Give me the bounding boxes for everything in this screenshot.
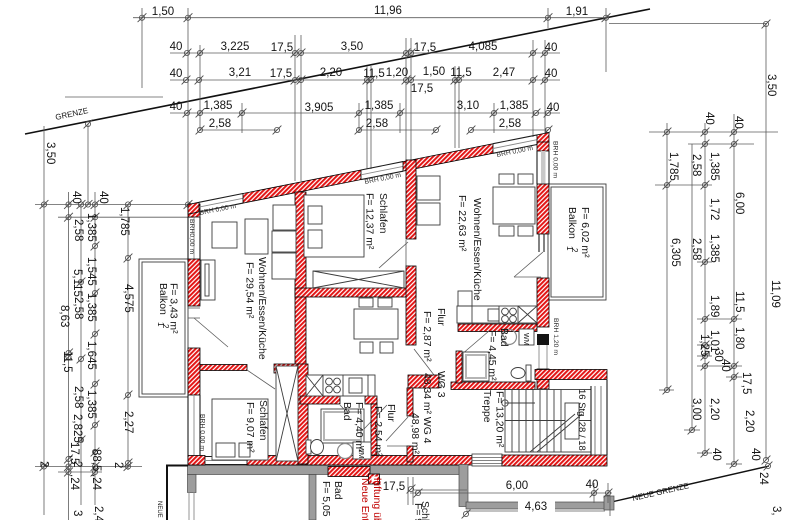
svg-text:NEUE: NEUE (156, 501, 162, 518)
svg-text:,24: ,24 (90, 474, 102, 491)
svg-text:3,905: 3,905 (305, 102, 334, 114)
svg-text:2,825: 2,825 (71, 414, 83, 443)
svg-text:BRH 0,00 m: BRH 0,00 m (552, 141, 559, 178)
svg-text:1,545: 1,545 (85, 257, 97, 286)
svg-text:17,5: 17,5 (740, 372, 752, 394)
svg-text:Wohnen/Essen/Küche: Wohnen/Essen/Küche (471, 198, 482, 301)
svg-text:48,98 m²: 48,98 m² (409, 413, 420, 455)
svg-text:2: 2 (570, 248, 579, 253)
svg-text:2,20: 2,20 (320, 67, 342, 79)
svg-text:Schlafen: Schlafen (377, 193, 388, 234)
svg-text:1,785: 1,785 (118, 207, 130, 236)
svg-text:3,: 3, (770, 506, 782, 516)
svg-text:6,00: 6,00 (506, 480, 528, 492)
svg-text:Bad: Bad (341, 402, 352, 421)
svg-text:1,89: 1,89 (708, 295, 720, 317)
svg-text:40: 40 (749, 448, 761, 461)
svg-text:11,5: 11,5 (450, 67, 472, 79)
svg-text:Treppe: Treppe (481, 390, 492, 423)
svg-text:24: 24 (757, 472, 769, 485)
svg-text:2,58: 2,58 (690, 154, 702, 176)
svg-text:40: 40 (547, 102, 560, 114)
svg-text:40: 40 (732, 116, 744, 129)
svg-text:1,385: 1,385 (708, 152, 720, 181)
svg-text:2,58: 2,58 (72, 386, 84, 408)
svg-text:1,785: 1,785 (667, 152, 679, 181)
svg-text:40: 40 (545, 42, 558, 54)
svg-text:1,385: 1,385 (85, 213, 97, 242)
svg-text:Bad: Bad (332, 481, 343, 500)
svg-text:3,50: 3,50 (341, 41, 363, 53)
svg-text:40: 40 (703, 112, 715, 125)
svg-text:8,63: 8,63 (58, 305, 70, 327)
svg-text:2,58: 2,58 (72, 219, 84, 241)
svg-text:BRH 0,00 m: BRH 0,00 m (199, 414, 206, 451)
svg-text:Balkon: Balkon (566, 207, 577, 239)
svg-text:2,20: 2,20 (743, 410, 755, 432)
svg-text:1,385: 1,385 (85, 293, 97, 322)
svg-text:2: 2 (112, 462, 124, 468)
svg-text:11,96: 11,96 (374, 5, 402, 17)
svg-text:2,58: 2,58 (690, 238, 702, 260)
svg-text:Schlafen: Schlafen (257, 400, 268, 441)
svg-text:17,5: 17,5 (414, 42, 436, 54)
svg-text:5,115: 5,115 (71, 269, 83, 297)
svg-text:3,50: 3,50 (44, 142, 56, 164)
svg-text:1,20: 1,20 (386, 67, 408, 79)
svg-text:Flur: Flur (385, 404, 396, 422)
svg-text:2,58: 2,58 (499, 118, 521, 130)
svg-text:F= 9,07 m²: F= 9,07 m² (244, 402, 255, 453)
svg-text:3,10: 3,10 (457, 100, 479, 112)
svg-text:2,27: 2,27 (122, 411, 134, 433)
svg-text:2,58: 2,58 (72, 297, 84, 319)
svg-text:Wohnen/Essen/Küche: Wohnen/Essen/Küche (256, 257, 267, 360)
svg-text:WM: WM (522, 333, 529, 346)
svg-text:Bad: Bad (498, 328, 509, 347)
svg-text:1,645: 1,645 (85, 341, 97, 370)
svg-text:F= 29,54 m²: F= 29,54 m² (244, 262, 255, 319)
svg-text:6,305: 6,305 (669, 238, 681, 267)
svg-text:3,225: 3,225 (221, 41, 250, 53)
svg-text:1,50: 1,50 (423, 66, 445, 78)
svg-text:F= 22,63 m²: F= 22,63 m² (456, 195, 467, 252)
svg-text:1,80: 1,80 (733, 327, 745, 349)
svg-text:40: 40 (70, 191, 82, 204)
svg-text:F= 2,87 m²: F= 2,87 m² (421, 311, 432, 362)
svg-text:F= 2,54 m²: F= 2,54 m² (372, 406, 383, 457)
svg-text:4,575: 4,575 (122, 284, 134, 313)
svg-text:2: 2 (71, 461, 83, 467)
svg-text:1,385: 1,385 (365, 100, 394, 112)
svg-text:F= 9,4: F= 9,4 (412, 503, 423, 520)
svg-text:40: 40 (586, 479, 599, 491)
svg-text:11,5: 11,5 (61, 351, 73, 373)
svg-text:Balkon: Balkon (157, 283, 168, 315)
svg-text:WG 3: WG 3 (435, 371, 446, 398)
svg-text:2: 2 (38, 461, 50, 467)
svg-text:40: 40 (710, 448, 722, 461)
svg-text:48,34 m² WG 4: 48,34 m² WG 4 (421, 373, 432, 444)
svg-text:F= 6,02 m²: F= 6,02 m² (579, 207, 590, 258)
svg-text:2,4: 2,4 (92, 506, 104, 520)
svg-text:4,085: 4,085 (469, 41, 498, 53)
svg-text:16 Stg. 28 / 18: 16 Stg. 28 / 18 (576, 389, 587, 451)
svg-text:,24: ,24 (68, 474, 80, 491)
svg-text:3,21: 3,21 (229, 67, 251, 79)
svg-text:40: 40 (97, 191, 109, 204)
svg-text:17,5: 17,5 (411, 83, 433, 95)
svg-text:1,50: 1,50 (152, 6, 174, 18)
svg-text:11,5: 11,5 (363, 68, 385, 80)
svg-text:Neue Ent: Neue Ent (359, 478, 370, 520)
svg-text:BRH 1,20 m: BRH 1,20 m (552, 318, 559, 355)
svg-text:3: 3 (71, 510, 83, 516)
svg-text:40: 40 (170, 101, 183, 113)
svg-text:2,20: 2,20 (708, 398, 720, 420)
svg-text:F= 13,20 m²: F= 13,20 m² (494, 391, 505, 448)
svg-text:4,63: 4,63 (525, 501, 547, 513)
svg-text:17,5: 17,5 (271, 42, 293, 54)
svg-text:BRH0,00 m: BRH0,00 m (188, 219, 195, 254)
svg-text:40: 40 (170, 41, 183, 53)
svg-text:2,58: 2,58 (366, 118, 388, 130)
svg-text:1,385: 1,385 (204, 100, 233, 112)
svg-text:2,47: 2,47 (493, 67, 515, 79)
svg-text:1,72: 1,72 (708, 198, 720, 220)
svg-text:88,5: 88,5 (90, 449, 102, 471)
svg-text:17,5: 17,5 (270, 68, 292, 80)
svg-text:11,5: 11,5 (733, 291, 745, 313)
svg-text:11,09: 11,09 (769, 280, 781, 308)
svg-text:1,385: 1,385 (708, 234, 720, 263)
svg-text:1,385: 1,385 (500, 100, 529, 112)
svg-text:40: 40 (170, 68, 183, 80)
svg-text:3,50: 3,50 (765, 74, 777, 96)
svg-text:lüftung üb: lüftung üb (371, 478, 382, 520)
svg-text:F= 3,43 m²: F= 3,43 m² (168, 283, 179, 334)
svg-text:F= 5,05: F= 5,05 (320, 481, 331, 517)
svg-text:3,00: 3,00 (690, 398, 702, 420)
svg-text:F= 4,45 m²: F= 4,45 m² (486, 330, 497, 381)
svg-text:F= 4,40 m²: F= 4,40 m² (353, 402, 364, 453)
svg-text:F= 12,37 m²: F= 12,37 m² (364, 193, 375, 250)
svg-text:Flur: Flur (435, 308, 446, 326)
svg-text:40: 40 (719, 359, 731, 372)
svg-text:6,00: 6,00 (733, 192, 745, 214)
svg-text:1,91: 1,91 (566, 6, 588, 18)
svg-text:40: 40 (545, 68, 558, 80)
svg-text:2,58: 2,58 (209, 118, 231, 130)
svg-text:17,5: 17,5 (383, 481, 405, 493)
svg-text:1,385: 1,385 (85, 390, 97, 419)
